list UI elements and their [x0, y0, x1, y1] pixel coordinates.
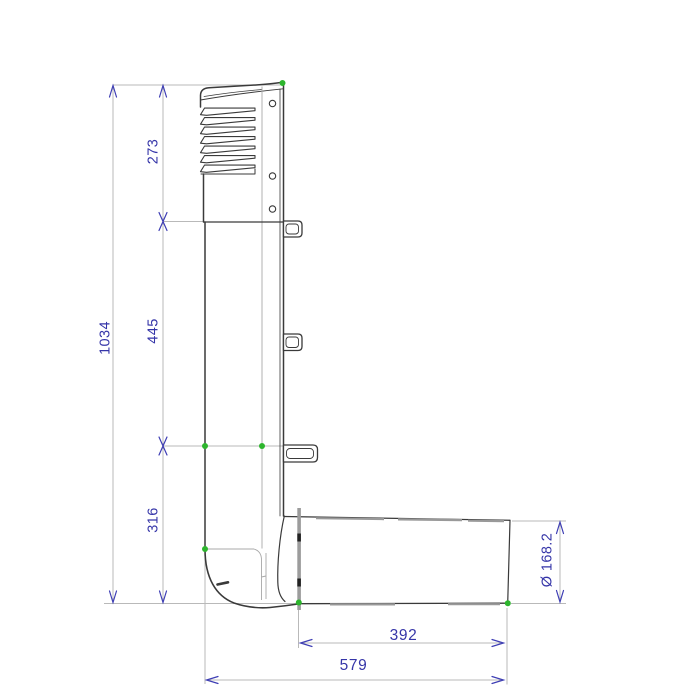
extension-lines — [104, 85, 566, 685]
pipe-end-edge — [508, 521, 510, 604]
louver-grille — [201, 108, 256, 174]
endpoint-marker-icon — [202, 443, 208, 449]
endpoint-marker-icon — [259, 443, 265, 449]
elbow-outer-curve — [205, 549, 298, 608]
dim-label-total-height: 1034 — [98, 321, 114, 355]
mounting-tab-wide — [284, 445, 318, 462]
endpoint-marker-icon — [202, 546, 208, 552]
dim-label-mid-section: 445 — [146, 318, 162, 343]
dimension-lines — [113, 85, 560, 680]
elbow-inner-detail — [205, 549, 266, 600]
endpoint-marker-icon — [505, 600, 511, 606]
louver-slat — [201, 165, 256, 172]
endpoint-marker-icon — [280, 80, 286, 86]
elbow-bell-curve — [278, 516, 285, 602]
hood-rim-line — [201, 89, 284, 100]
hood-outline — [201, 82, 284, 107]
louver-slat — [201, 118, 256, 125]
louver-slat — [201, 137, 256, 144]
louver-slat — [201, 127, 256, 134]
drain-mark — [218, 582, 229, 584]
endpoint-marker-icon — [296, 600, 302, 606]
body-left-edge — [204, 174, 206, 549]
louver-slat — [201, 108, 256, 115]
drawing-canvas: 1034 273 445 316 392 579 Ø 168.2 — [0, 0, 700, 699]
dim-label-pipe-length: 392 — [390, 627, 418, 644]
dimension-arrowheads — [110, 86, 564, 684]
elbow-bend — [205, 516, 298, 608]
louver-slat — [201, 146, 256, 153]
flange-mark — [297, 579, 301, 587]
technical-drawing: 1034 273 445 316 392 579 Ø 168.2 — [0, 0, 700, 699]
dim-label-bottom-section: 316 — [146, 507, 162, 532]
louver-slat — [201, 156, 256, 163]
dim-label-total-width: 579 — [340, 657, 368, 674]
screw-hole-icon — [269, 100, 275, 106]
screw-hole-icon — [269, 206, 275, 212]
vent-hood — [201, 82, 284, 549]
horizontal-pipe — [285, 508, 511, 610]
flange-mark — [297, 534, 301, 542]
dim-label-hood-section: 273 — [146, 139, 162, 164]
pipe-socket-flange — [297, 508, 301, 610]
screw-hole-icon — [269, 173, 275, 179]
hood-rim-line-2 — [204, 90, 262, 97]
dim-label-pipe-diameter: Ø 168.2 — [540, 533, 556, 587]
mounting-tabs — [284, 221, 318, 462]
